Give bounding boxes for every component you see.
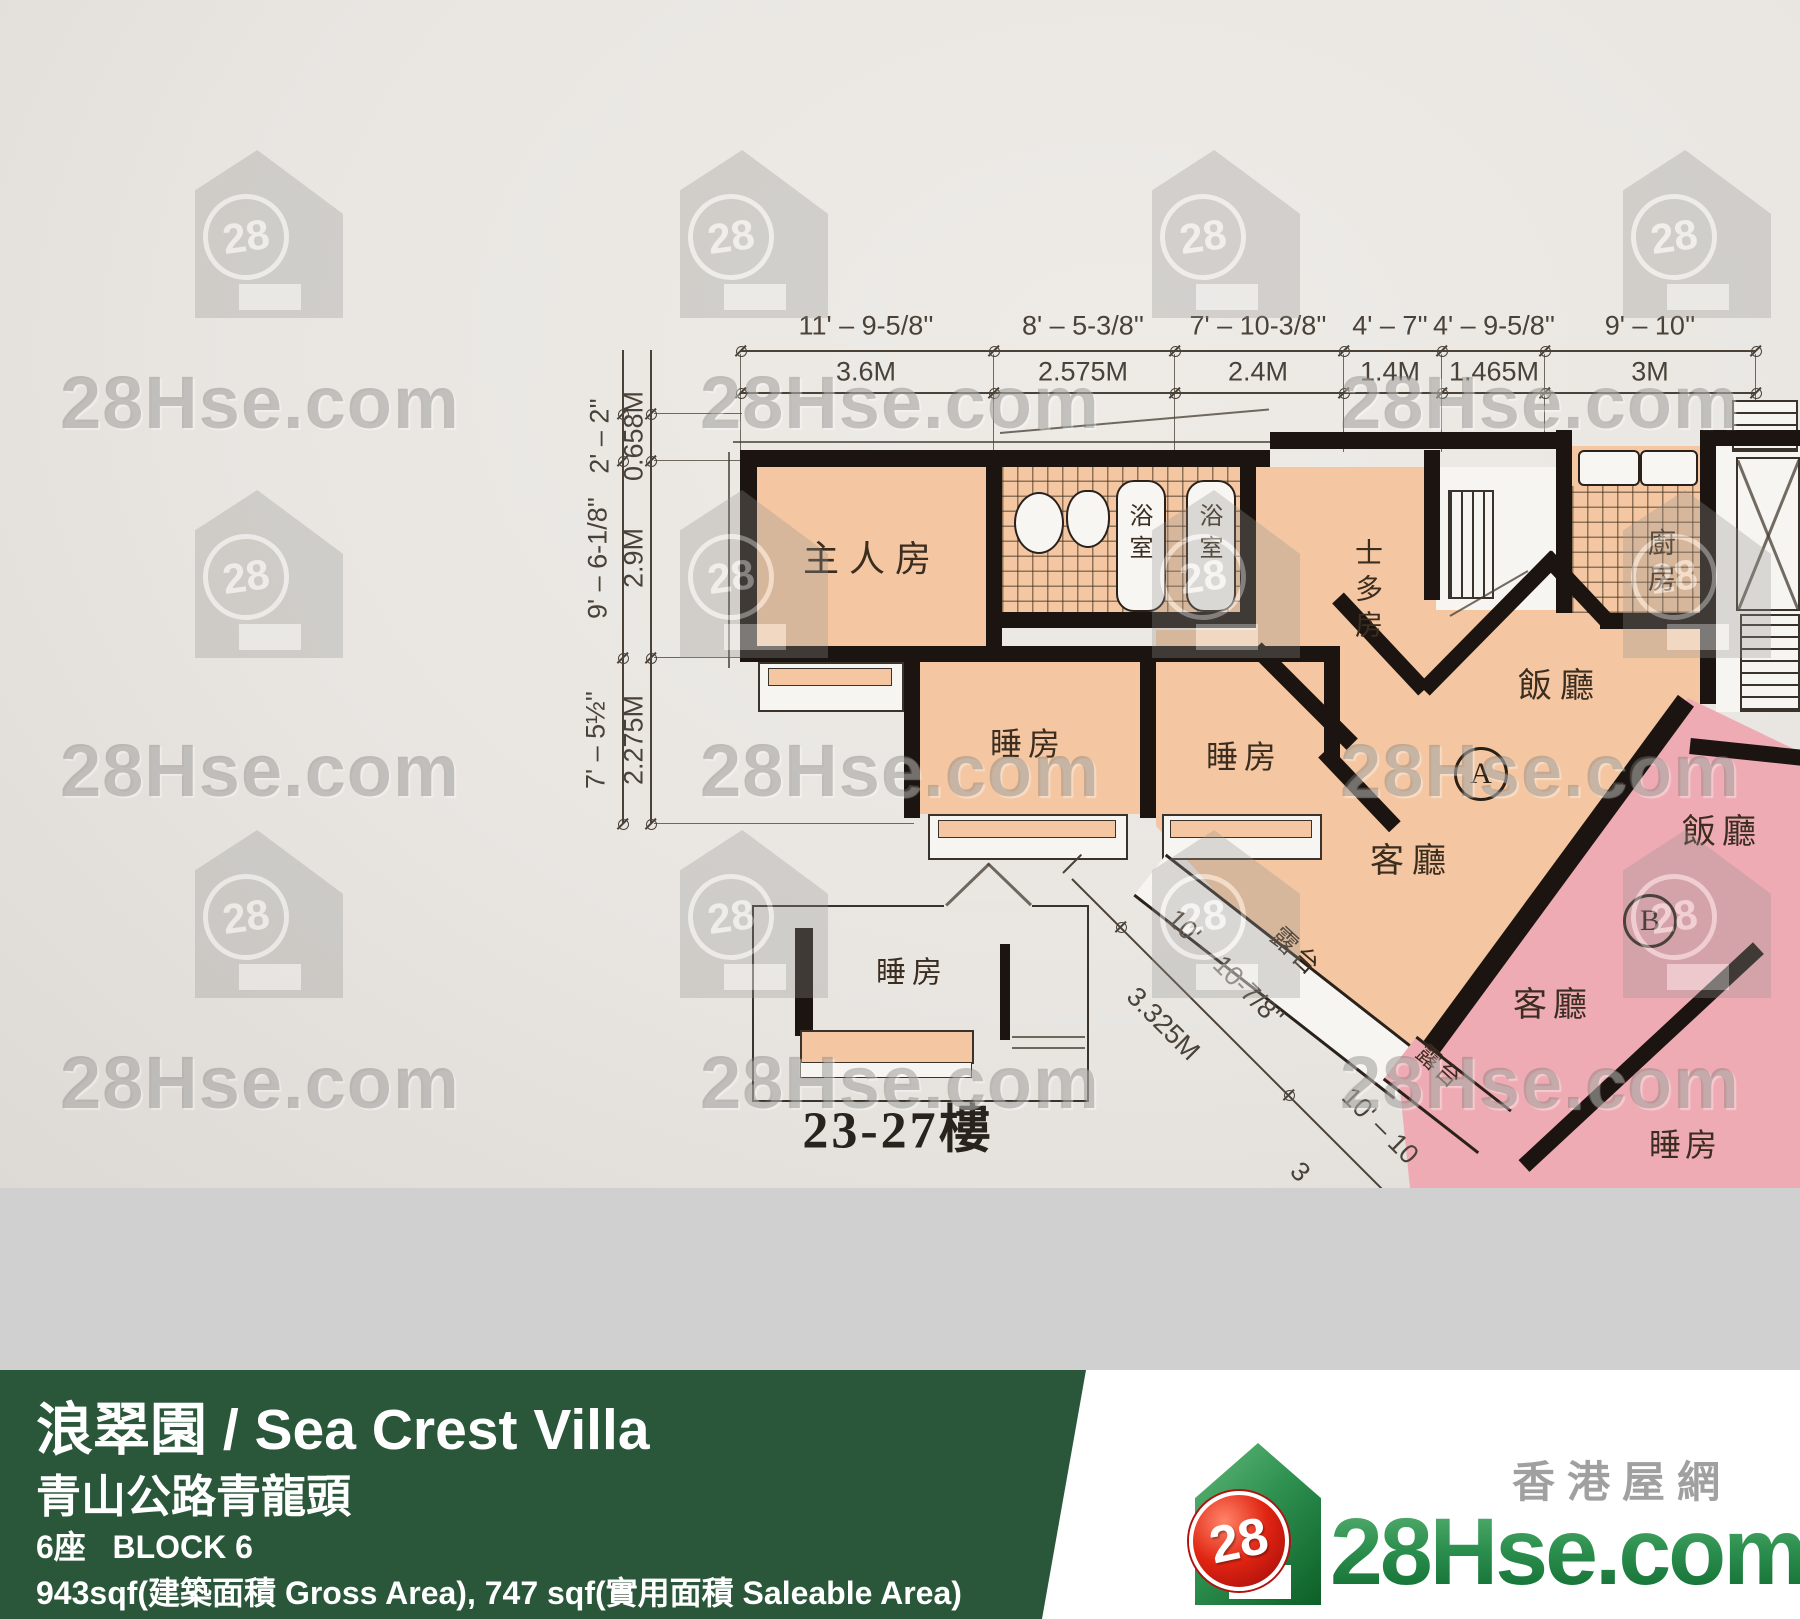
dim-tick	[736, 346, 747, 357]
inset-notch-line	[945, 863, 990, 906]
watermark-house-icon: 28	[195, 150, 343, 318]
room-label-dining-a: 飯廳	[1518, 669, 1602, 705]
top-dim-metric: 2.4M	[1228, 357, 1288, 388]
wall	[1324, 646, 1340, 760]
kitchen-counter	[1578, 450, 1640, 486]
watermark-brand-text: 28Hse.com	[1340, 728, 1740, 813]
logo-28-badge: 28	[1189, 1491, 1289, 1591]
inset-notch-gap	[944, 901, 1032, 911]
watermark-house-icon: 28	[680, 830, 828, 998]
top-dim-imperial: 8' – 5-3/8''	[1022, 311, 1144, 342]
dim-tick	[646, 653, 657, 664]
diag-dim-metric-2: 3	[1284, 1156, 1317, 1188]
watermark-house-icon: 28	[1152, 490, 1300, 658]
wall	[1140, 646, 1156, 818]
estate-area: 943sqf(建築面積 Gross Area), 747 sqf(實用面積 Sa…	[36, 1568, 962, 1614]
left-dim-metric: 0.658M	[619, 391, 650, 481]
watermark-house-door	[1196, 624, 1258, 650]
watermark-house-door	[1667, 964, 1729, 990]
top-dim-imperial: 4' – 9-5/8''	[1433, 311, 1555, 342]
watermark-house-door	[1667, 624, 1729, 650]
wall	[1424, 450, 1440, 600]
watermark-brand-text: 28Hse.com	[1340, 360, 1740, 445]
watermark-house-door	[1667, 284, 1729, 310]
left-dim-metric: 2.9M	[619, 528, 650, 588]
watermark-house-icon: 28	[680, 490, 828, 658]
inset-line	[1012, 1036, 1085, 1038]
entry-door	[1448, 490, 1494, 599]
room-label-bedroom-b: 睡房	[1649, 1129, 1721, 1163]
watermark-house-icon: 28	[680, 150, 828, 318]
left-dim-line-metric	[650, 350, 652, 823]
top-dim-imperial: 4' – 7''	[1352, 311, 1428, 342]
watermark-house-icon: 28	[195, 830, 343, 998]
wall	[740, 450, 1270, 467]
dim-tick	[1751, 346, 1762, 357]
watermark-house-door	[724, 964, 786, 990]
watermark-house-icon: 28	[1623, 490, 1771, 658]
left-dim-imperial: 9' – 6-1/8''	[583, 497, 614, 619]
dim-tick	[1170, 388, 1181, 399]
watermark-brand-text: 28Hse.com	[60, 1040, 460, 1125]
estate-title: 浪翠園 / Sea Crest Villa	[36, 1384, 650, 1466]
dim-tick	[1751, 388, 1762, 399]
inset-notch-line	[987, 862, 1032, 905]
watermark-brand-text: 28Hse.com	[700, 728, 1100, 813]
watermark-house-door	[724, 284, 786, 310]
dim-extension	[654, 460, 742, 461]
watermark-brand-text: 28Hse.com	[60, 728, 460, 813]
floor-plan-photo: 28282828282828282828282828Hse.com28Hse.c…	[0, 0, 1800, 1188]
watermark-brand-text: 28Hse.com	[1340, 1040, 1740, 1125]
28hse-house-icon: 28	[1195, 1443, 1321, 1605]
watermark-house-door	[1196, 964, 1258, 990]
watermark-brand-text: 28Hse.com	[700, 1040, 1100, 1125]
watermark-house-door	[239, 964, 301, 990]
photo-margin-strip	[0, 1188, 1800, 1370]
dim-tick	[989, 346, 1000, 357]
info-banner: 浪翠園 / Sea Crest Villa 青山公路青龍頭 6座 BLOCK 6…	[0, 1370, 1800, 1619]
dim-tick	[1437, 346, 1448, 357]
dim-tick	[618, 819, 629, 830]
wall	[986, 450, 1002, 646]
inset-room-label-bedroom: 睡房	[876, 957, 948, 989]
bay-window-sill	[768, 668, 892, 686]
watermark-house-icon: 28	[1152, 150, 1300, 318]
watermark-house-icon: 28	[1623, 830, 1771, 998]
dim-tick	[646, 819, 657, 830]
room-label-bathroom: 浴室	[1126, 503, 1150, 567]
dim-tick	[618, 653, 629, 664]
dim-tick	[1170, 346, 1181, 357]
sink	[1014, 492, 1064, 554]
dim-tick	[1284, 1090, 1295, 1101]
bay-window-sill	[938, 820, 1116, 838]
watermark-brand-text: 28Hse.com	[60, 360, 460, 445]
room-label-store-room: 士多房	[1352, 538, 1380, 646]
screenshot-root: 28282828282828282828282828Hse.com28Hse.c…	[0, 0, 1800, 1619]
top-dim-line-imperial	[740, 350, 1755, 352]
left-dim-imperial: 7' – 5½''	[581, 691, 612, 789]
inset-wall	[1000, 944, 1010, 1040]
estate-address: 青山公路青龍頭	[36, 1460, 351, 1525]
watermark-house-icon: 28	[1152, 830, 1300, 998]
watermark-brand-text: 28Hse.com	[700, 360, 1100, 445]
watermark-house-door	[1196, 284, 1258, 310]
logo-site-name: 28Hse.com	[1330, 1498, 1800, 1607]
dim-tick	[1540, 346, 1551, 357]
left-dim-metric: 2.275M	[619, 695, 650, 785]
watermark-house-icon: 28	[1623, 150, 1771, 318]
room-label-bedroom-2: 睡房	[1206, 741, 1282, 775]
dim-tick	[1339, 346, 1350, 357]
dim-tick	[1116, 922, 1127, 933]
room-label-living-a: 客廳	[1370, 844, 1454, 880]
watermark-house-door	[239, 284, 301, 310]
left-dim-imperial: 2' – 2''	[585, 398, 616, 474]
dim-extension	[654, 823, 914, 824]
watermark-house-icon: 28	[195, 490, 343, 658]
room-label-living-b: 客廳	[1513, 988, 1593, 1024]
toilet	[1066, 490, 1110, 548]
kitchen-counter	[1640, 450, 1698, 486]
estate-block: 6座 BLOCK 6	[36, 1522, 253, 1568]
watermark-house-door	[724, 624, 786, 650]
watermark-house-door	[239, 624, 301, 650]
